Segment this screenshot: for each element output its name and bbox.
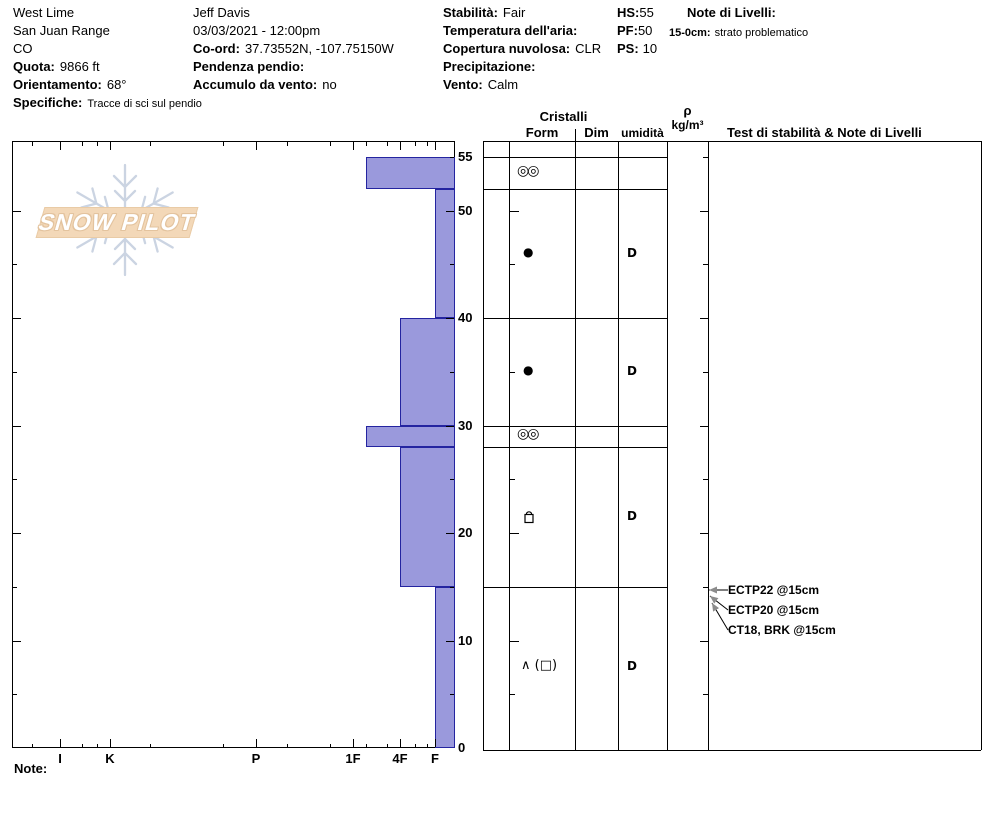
depth-tick-right bbox=[446, 426, 454, 427]
footer-note-label: Note: bbox=[14, 760, 47, 777]
elevation-label: Quota: bbox=[13, 59, 55, 74]
cristalli-header: Cristalli bbox=[509, 109, 618, 124]
depth-tick-left bbox=[13, 264, 17, 265]
form-depth-tick bbox=[510, 479, 515, 480]
airtemp-label: Temperatura dell'aria: bbox=[443, 23, 577, 38]
depth-tick-left bbox=[13, 587, 17, 588]
pf-value: 50 bbox=[638, 23, 652, 38]
layer-note-depth: 15-0cm: bbox=[669, 27, 711, 39]
depth-tick-left bbox=[13, 211, 21, 212]
coord-label: Co-ord: bbox=[193, 41, 240, 56]
depth-tick-label: 55 bbox=[458, 149, 472, 164]
aspect-value: 68° bbox=[107, 77, 127, 92]
hardness-tick-label: 4F bbox=[388, 751, 412, 766]
table-vline bbox=[483, 141, 484, 750]
hardness-minortick-bottom bbox=[415, 744, 416, 748]
hs-line: HS:55 bbox=[617, 4, 654, 21]
hardness-minortick-top bbox=[287, 142, 288, 146]
table-vline bbox=[575, 141, 576, 750]
fcxr-grain-icon bbox=[523, 510, 536, 524]
layer-boundary-line bbox=[483, 189, 667, 190]
hs-value: 55 bbox=[639, 5, 653, 20]
depth-tick-label: 30 bbox=[458, 418, 472, 433]
layer-note-text: strato problematico bbox=[715, 27, 809, 39]
depth-tick-right bbox=[450, 694, 454, 695]
table-vline bbox=[618, 141, 619, 750]
table-hline-bottom bbox=[483, 750, 981, 751]
hardness-minortick-bottom bbox=[97, 744, 98, 748]
location-range: San Juan Range bbox=[13, 22, 110, 39]
comments-label: Specifiche: bbox=[13, 95, 82, 110]
sky-label: Copertura nuvolosa: bbox=[443, 41, 570, 56]
stability-test-arrows bbox=[699, 575, 799, 645]
windload-label: Accumulo da vento: bbox=[193, 77, 317, 92]
depth-tick-label: 10 bbox=[458, 633, 472, 648]
tests-depth-tick bbox=[703, 157, 708, 158]
layer-boundary-line bbox=[483, 318, 667, 319]
depth-tick-right bbox=[450, 157, 454, 158]
sky-line: Copertura nuvolosa:CLR bbox=[443, 40, 601, 57]
hardness-minortick-bottom bbox=[427, 744, 428, 748]
ps-value: 10 bbox=[643, 41, 657, 56]
form-depth-tick bbox=[510, 533, 519, 534]
depth-tick-right bbox=[446, 533, 454, 534]
windload-line: Accumulo da vento:no bbox=[193, 76, 337, 93]
hardness-tick-bottom bbox=[110, 739, 111, 747]
hardness-minortick-bottom bbox=[330, 744, 331, 748]
form-depth-tick bbox=[510, 264, 515, 265]
layer-bar bbox=[400, 318, 455, 425]
pf-label: PF: bbox=[617, 23, 638, 38]
moisture-value: D bbox=[622, 364, 642, 378]
hardness-tick-top bbox=[435, 142, 436, 150]
layer-boundary-line bbox=[483, 157, 667, 158]
wind-value: Calm bbox=[488, 77, 518, 92]
hardness-tick-label: P bbox=[244, 751, 268, 766]
layer-boundary-line bbox=[483, 447, 667, 448]
layer-boundary-line bbox=[483, 426, 667, 427]
hardness-tick-bottom bbox=[353, 739, 354, 747]
coord-line: Co-ord:37.73552N, -107.75150W bbox=[193, 40, 394, 57]
form-depth-tick bbox=[510, 694, 515, 695]
density-header-units: kg/m³ bbox=[667, 118, 708, 132]
stability-line: Stabilità:Fair bbox=[443, 4, 525, 21]
stability-label: Stabilità: bbox=[443, 5, 498, 20]
wind-label: Vento: bbox=[443, 77, 483, 92]
precip-label: Precipitazione: bbox=[443, 59, 535, 74]
depth-tick-label: 0 bbox=[458, 740, 465, 755]
depth-tick-label: 50 bbox=[458, 203, 472, 218]
hardness-minortick-bottom bbox=[150, 744, 151, 748]
depth-tick-left bbox=[13, 318, 21, 319]
tests-depth-tick bbox=[700, 211, 708, 212]
layer-bar bbox=[435, 587, 455, 748]
table-hline-top bbox=[483, 141, 981, 142]
depth-tick-right bbox=[446, 318, 454, 319]
layer-bar bbox=[366, 157, 455, 189]
ps-label: PS: bbox=[617, 41, 639, 56]
hardness-tick-label: K bbox=[98, 751, 122, 766]
stability-value: Fair bbox=[503, 5, 525, 20]
depth-tick-right bbox=[446, 641, 454, 642]
layer-bar bbox=[435, 189, 455, 318]
elevation-value: 9866 ft bbox=[60, 59, 100, 74]
table-vline bbox=[708, 141, 709, 750]
hardness-tick-bottom bbox=[400, 739, 401, 747]
aspect-line: Orientamento:68° bbox=[13, 76, 127, 93]
hardness-minortick-top bbox=[330, 142, 331, 146]
aspect-label: Orientamento: bbox=[13, 77, 102, 92]
hardness-minortick-bottom bbox=[82, 744, 83, 748]
table-vline bbox=[981, 141, 982, 750]
hardness-minortick-top bbox=[97, 142, 98, 146]
depth-tick-left bbox=[13, 426, 21, 427]
pf-line: PF:50 bbox=[617, 22, 652, 39]
hardness-minortick-top bbox=[427, 142, 428, 146]
depth-tick-right bbox=[450, 479, 454, 480]
form-depth-tick bbox=[510, 372, 515, 373]
table-vline bbox=[509, 141, 510, 750]
tests-depth-tick bbox=[703, 694, 708, 695]
tests-depth-tick bbox=[703, 372, 708, 373]
depth-tick-left bbox=[13, 694, 17, 695]
sky-value: CLR bbox=[575, 41, 601, 56]
hardness-minortick-top bbox=[150, 142, 151, 146]
hardness-minortick-top bbox=[366, 142, 367, 146]
depth-tick-left bbox=[13, 641, 21, 642]
airtemp-line: Temperatura dell'aria: bbox=[443, 22, 582, 39]
hardness-minortick-bottom bbox=[223, 744, 224, 748]
comments-line: Specifiche:Tracce di sci sul pendio bbox=[13, 94, 202, 113]
grain-form-symbol: ◎◎ bbox=[517, 163, 537, 179]
hardness-tick-bottom bbox=[256, 739, 257, 747]
hardness-minortick-bottom bbox=[287, 744, 288, 748]
hardness-minortick-top bbox=[82, 142, 83, 146]
form-depth-tick bbox=[510, 211, 519, 212]
depth-tick-left bbox=[13, 372, 17, 373]
hardness-tick-bottom bbox=[435, 739, 436, 747]
hardness-minortick-bottom bbox=[387, 744, 388, 748]
wind-line: Vento:Calm bbox=[443, 76, 518, 93]
hardness-tick-top bbox=[110, 142, 111, 150]
hardness-minortick-top bbox=[387, 142, 388, 146]
depth-tick-right bbox=[446, 211, 454, 212]
depth-tick-label: 40 bbox=[458, 310, 472, 325]
layer-note-line: 15-0cm:strato problematico bbox=[669, 23, 808, 42]
hardness-tick-bottom bbox=[60, 739, 61, 747]
depth-tick-label: 20 bbox=[458, 525, 472, 540]
tests-depth-tick bbox=[700, 533, 708, 534]
slope-label: Pendenza pendio: bbox=[193, 59, 304, 74]
depth-tick-right bbox=[450, 587, 454, 588]
tests-depth-tick bbox=[703, 479, 708, 480]
form-dim-divider bbox=[575, 129, 576, 141]
depth-tick-left bbox=[13, 479, 17, 480]
comments-value: Tracce di sci sul pendio bbox=[87, 98, 202, 110]
hardness-tick-label: F bbox=[423, 751, 447, 766]
hs-label: HS: bbox=[617, 5, 639, 20]
grain-form-symbol: ● bbox=[523, 245, 533, 259]
grain-form-symbol: ∧ (□) bbox=[521, 658, 557, 673]
location-name: West Lime bbox=[13, 4, 74, 21]
form-column-header: Form bbox=[509, 125, 575, 140]
dim-column-header: Dim bbox=[575, 125, 618, 140]
tests-depth-tick bbox=[700, 426, 708, 427]
depth-tick-left bbox=[13, 533, 21, 534]
tests-depth-tick bbox=[700, 318, 708, 319]
tests-column-header: Test di stabilità & Note di Livelli bbox=[727, 125, 922, 140]
tests-depth-tick bbox=[703, 264, 708, 265]
table-vline bbox=[667, 141, 668, 750]
observer-name: Jeff Davis bbox=[193, 4, 250, 21]
layer-bar bbox=[366, 426, 455, 447]
hardness-tick-top bbox=[256, 142, 257, 150]
hardness-tick-top bbox=[60, 142, 61, 150]
moisture-value: D bbox=[622, 659, 642, 673]
snowpilot-profile-page: West Lime San Juan Range CO Quota:9866 f… bbox=[0, 0, 994, 840]
grain-form-symbol: ● bbox=[523, 363, 533, 377]
moisture-value: D bbox=[622, 246, 642, 260]
hardness-tick-top bbox=[353, 142, 354, 150]
hardness-tick-top bbox=[400, 142, 401, 150]
hardness-minortick-top bbox=[223, 142, 224, 146]
depth-tick-right bbox=[450, 264, 454, 265]
depth-tick-right bbox=[450, 372, 454, 373]
grain-form-symbol: ◎◎ bbox=[517, 426, 537, 442]
density-header-rho: ρ bbox=[667, 103, 708, 118]
layer-boundary-line bbox=[483, 587, 667, 588]
location-state: CO bbox=[13, 40, 33, 57]
moisture-value: D bbox=[622, 509, 642, 523]
hardness-minortick-top bbox=[415, 142, 416, 146]
hardness-tick-label: I bbox=[48, 751, 72, 766]
coord-value: 37.73552N, -107.75150W bbox=[245, 41, 394, 56]
layer-bar bbox=[400, 447, 455, 587]
humidity-column-header: umidità bbox=[618, 126, 667, 140]
hardness-tick-label: 1F bbox=[341, 751, 365, 766]
hardness-minortick-bottom bbox=[32, 744, 33, 748]
layer-notes-header: Note di Livelli: bbox=[687, 4, 776, 21]
elevation-line: Quota:9866 ft bbox=[13, 58, 100, 75]
form-depth-tick bbox=[510, 641, 519, 642]
observation-datetime: 03/03/2021 - 12:00pm bbox=[193, 22, 320, 39]
precip-line: Precipitazione: bbox=[443, 58, 540, 75]
slope-line: Pendenza pendio: bbox=[193, 58, 309, 75]
windload-value: no bbox=[322, 77, 336, 92]
ps-line: PS:10 bbox=[617, 40, 657, 57]
hardness-minortick-bottom bbox=[366, 744, 367, 748]
hardness-minortick-top bbox=[32, 142, 33, 146]
